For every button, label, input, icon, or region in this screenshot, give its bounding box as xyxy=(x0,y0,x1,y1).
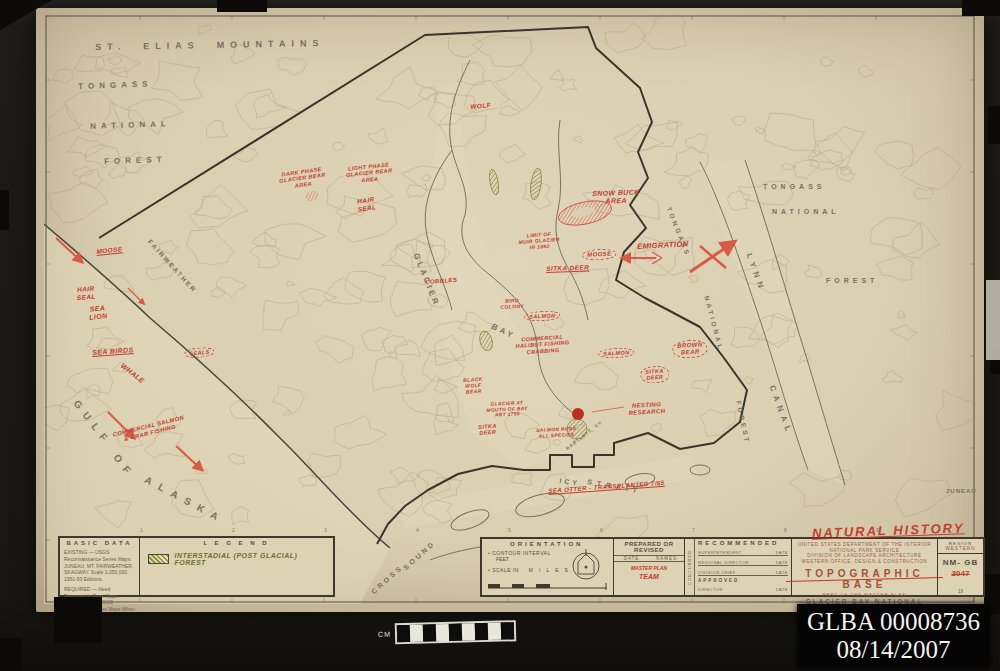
map-annotation: SNOW BUCK AREA xyxy=(592,188,640,206)
title-block-panel: ORIENTATION CONTOUR INTERVAL FEET SCALE … xyxy=(480,537,985,597)
basic-data-box: BASIC DATA EXISTING — USGS Reconnaissanc… xyxy=(60,538,140,595)
map-place-label: TONGASS xyxy=(763,183,826,190)
map-annotation: GLACIER AT MOUTH OF BAY ABT 1750 xyxy=(486,400,528,419)
drawing-number: 3047 xyxy=(952,569,970,578)
prepared-note-2: TEAM xyxy=(614,572,684,581)
archival-photo-of-map: ST. ELIAS MOUNTAINSTONGASSNATIONALFOREST… xyxy=(0,0,1000,671)
forest-hatch-swatch xyxy=(148,554,169,564)
basic-data-header: BASIC DATA xyxy=(60,538,139,546)
map-annotation: LIMIT OF MUIR GLACIER IN 1892 xyxy=(518,231,561,252)
compass-icon xyxy=(567,547,605,583)
grid-number: 1 xyxy=(140,527,143,533)
sig-role: SUPERINTENDENT xyxy=(698,550,742,555)
recommended-box: CONCURRED RECOMMENDED SUPERINTENDENT DAT… xyxy=(685,539,792,595)
concurred-label: CONCURRED xyxy=(687,550,692,585)
map-annotation: NESTING RESEARCH xyxy=(628,401,666,417)
legend-header: L E G E N D xyxy=(140,538,333,546)
legend-item-label: INTERSTADIAL (POST GLACIAL) FOREST xyxy=(174,552,327,566)
region-column: REGION WESTERN NM- GB 3047 19 xyxy=(937,539,983,595)
prepared-col-names: NAMES xyxy=(649,556,684,561)
map-annotation: SITKA DEER xyxy=(478,423,497,437)
grid-number: 8 xyxy=(784,527,787,533)
grid-number: 3 xyxy=(324,527,327,533)
map-annotation: HAIR SEAL xyxy=(356,195,377,213)
scale-label: SCALE IN xyxy=(492,567,519,573)
checker-scale xyxy=(395,620,517,644)
sheet-number: 19 xyxy=(938,589,983,595)
prepared-header: PREPARED OR REVISED xyxy=(614,539,684,553)
map-annotation: SALMON RUNS ALL SPECIES xyxy=(536,426,577,439)
film-edge-mark xyxy=(962,0,1000,16)
film-edge-mark xyxy=(217,0,267,12)
cm-label: CM xyxy=(378,630,391,637)
catalog-date: 08/14/2007 xyxy=(797,636,990,664)
map-annotation: BLACK WOLF BEAR xyxy=(463,377,484,396)
catalog-number: GLBA 00008736 xyxy=(797,608,990,636)
orientation-header: ORIENTATION xyxy=(482,539,613,547)
sig-date: DATE xyxy=(776,550,788,555)
region-value: WESTERN xyxy=(938,546,983,554)
basic-data-existing: EXISTING — USGS Reconnaissance Series Ma… xyxy=(64,549,135,583)
film-edge-mark xyxy=(54,597,102,643)
map-annotation: SITKA DEER xyxy=(546,263,589,272)
film-edge-mark xyxy=(988,106,1000,144)
archive-catalog-label: GLBA 00008736 08/14/2007 xyxy=(797,604,990,668)
sheet-title: TOPOGRAPHIC BASE xyxy=(792,568,937,590)
title-line-1: UNITED STATES DEPARTMENT OF THE INTERIOR xyxy=(792,542,937,548)
title-sub: PART OF THE MASTER PLAN xyxy=(792,592,937,597)
sig-date: DATE xyxy=(776,560,788,565)
title-line-4: WESTERN OFFICE, DESIGN & CONSTRUCTION xyxy=(792,559,937,565)
grid-number: 5 xyxy=(508,527,511,533)
photo-scale-ruler: CM xyxy=(378,620,516,645)
map-place-label: JUNEAU xyxy=(946,488,977,494)
map-annotation: HAIR SEAL xyxy=(76,285,96,302)
region-label: REGION xyxy=(938,539,983,546)
basic-data-legend-panel: BASIC DATA EXISTING — USGS Reconnaissanc… xyxy=(58,536,335,597)
drawing-code: NM- GB xyxy=(938,558,983,567)
grid-number: 2 xyxy=(232,527,235,533)
map-annotation: BIRD COLONY xyxy=(500,298,524,311)
approved-role: DIRECTOR xyxy=(698,587,723,592)
map-place-label: FOREST xyxy=(826,277,878,284)
prepared-col-date: DATE xyxy=(614,556,649,561)
paper-edge xyxy=(986,280,1000,360)
film-edge-mark xyxy=(0,190,9,230)
map-annotation: SEA LION xyxy=(88,304,108,322)
map-annotation: COMMERCIAL HALIBUT FISHING CRABBING xyxy=(515,333,570,356)
recommended-header: RECOMMENDED xyxy=(698,540,788,546)
title-block: UNITED STATES DEPARTMENT OF THE INTERIOR… xyxy=(792,539,983,595)
map-place-label: NATIONAL xyxy=(772,208,840,215)
grid-number: 6 xyxy=(600,527,603,533)
legend-box: L E G E N D INTERSTADIAL (POST GLACIAL) … xyxy=(140,538,333,595)
approved-date: DATE xyxy=(776,587,788,592)
sig-date: DATE xyxy=(776,570,788,575)
sig-role: REGIONAL DIRECTOR xyxy=(698,560,749,565)
sig-role: DIVISION CHIEF xyxy=(698,570,736,575)
prepared-box: PREPARED OR REVISED DATE NAMES MASTER PL… xyxy=(614,539,685,595)
grid-number: 4 xyxy=(416,527,419,533)
grid-number: 7 xyxy=(692,527,695,533)
film-edge-mark xyxy=(0,638,22,671)
scale-bar xyxy=(488,581,608,591)
orientation-box: ORIENTATION CONTOUR INTERVAL FEET SCALE … xyxy=(482,539,614,595)
